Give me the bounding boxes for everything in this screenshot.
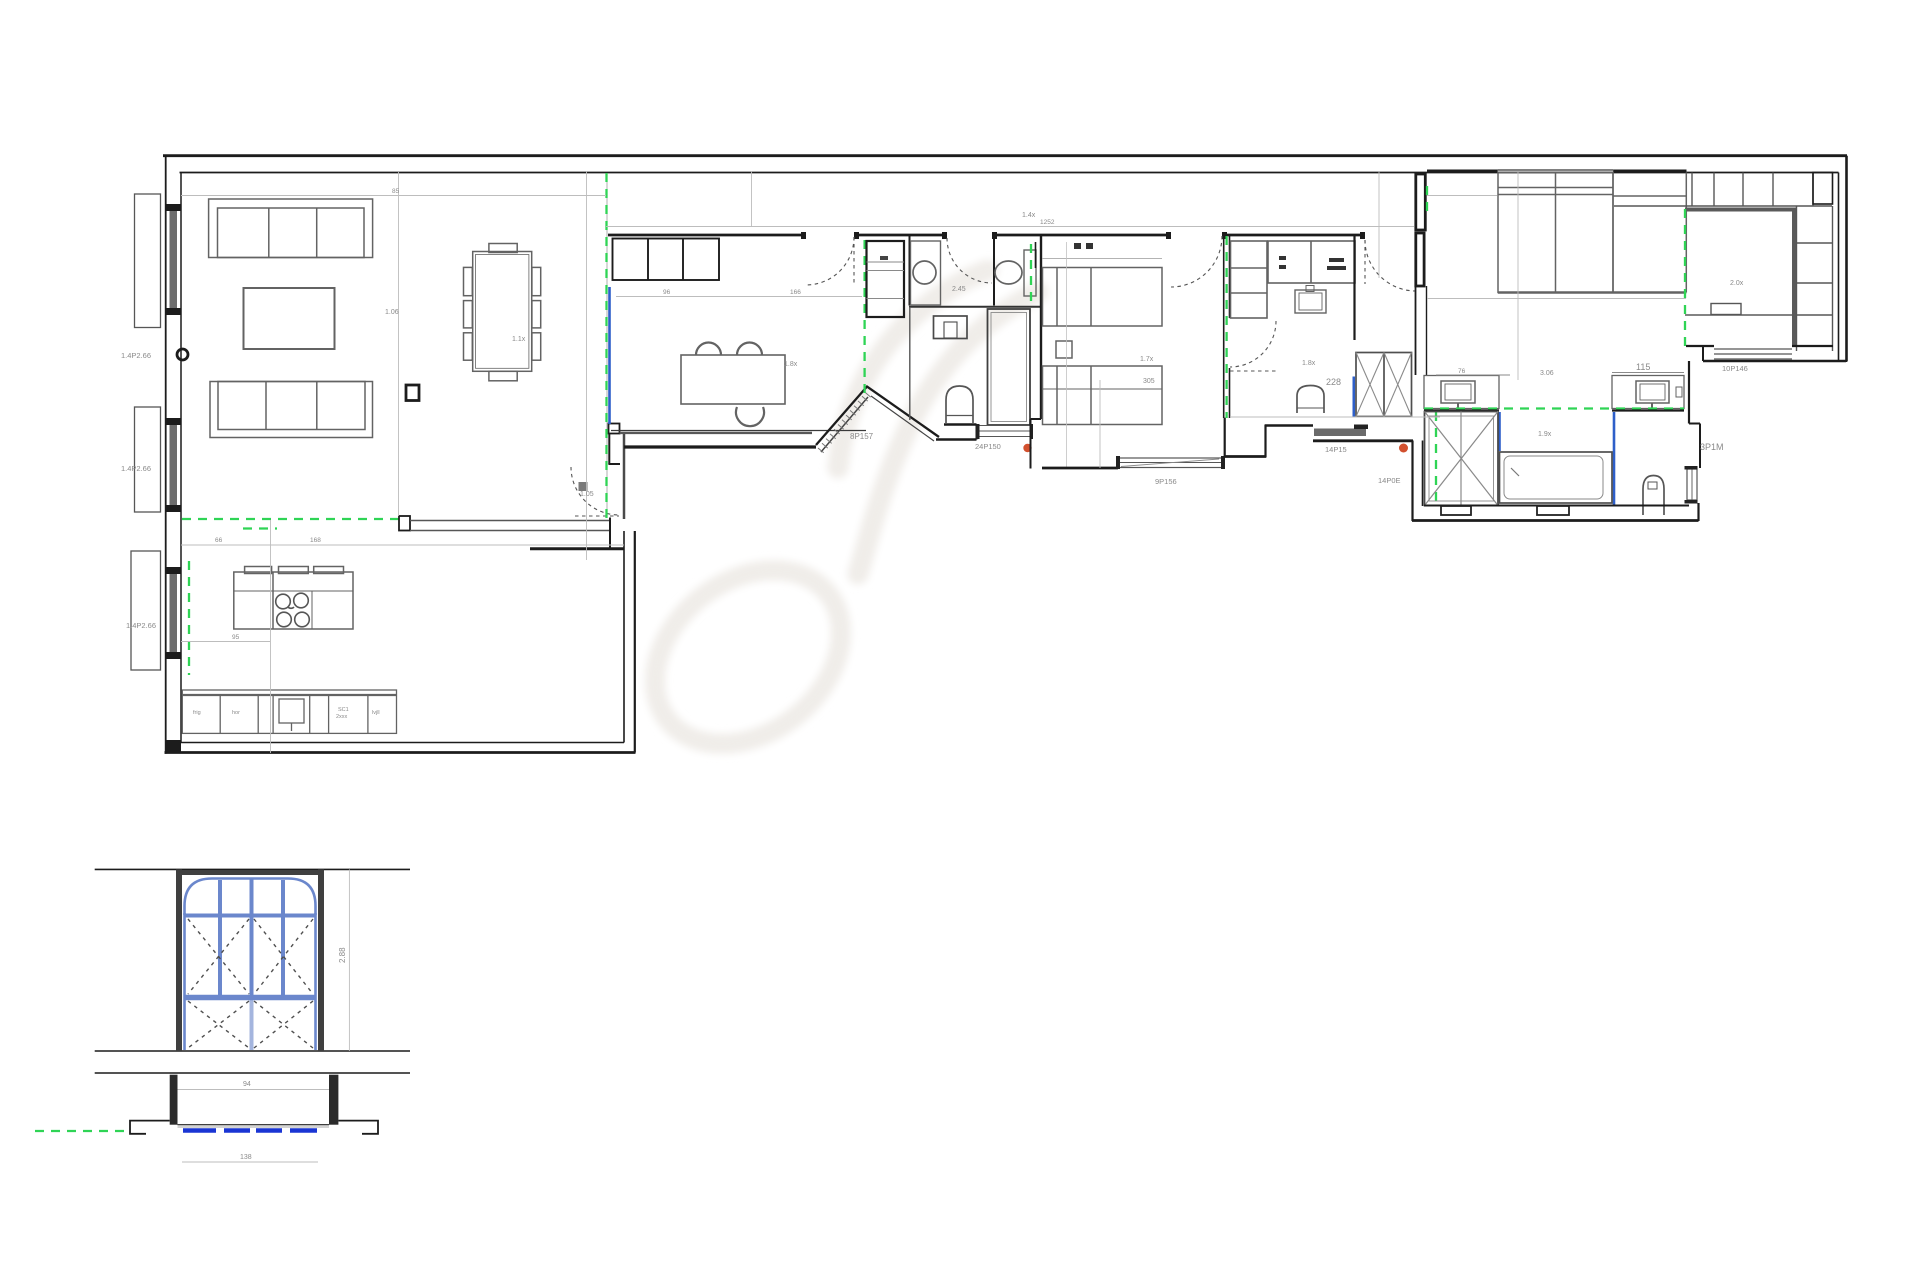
svg-text:8P157: 8P157: [850, 432, 874, 441]
svg-text:95: 95: [232, 634, 240, 641]
svg-text:24P150: 24P150: [975, 442, 1001, 451]
svg-text:166: 166: [790, 289, 801, 296]
svg-text:76: 76: [1458, 368, 1466, 375]
svg-text:2.45: 2.45: [952, 286, 966, 293]
svg-text:1.4P2.66: 1.4P2.66: [126, 621, 156, 630]
svg-text:9P156: 9P156: [1155, 477, 1177, 486]
svg-text:66: 66: [215, 537, 223, 544]
svg-text:3P1M: 3P1M: [1700, 442, 1724, 452]
svg-text:115: 115: [1636, 362, 1650, 372]
svg-text:305: 305: [1143, 378, 1155, 385]
svg-text:1252: 1252: [1040, 219, 1055, 226]
svg-text:2.0x: 2.0x: [1730, 280, 1744, 287]
svg-text:228: 228: [1326, 377, 1341, 387]
svg-text:14P15: 14P15: [1325, 445, 1347, 454]
svg-text:2xxx: 2xxx: [336, 714, 348, 720]
svg-text:frig: frig: [193, 710, 201, 716]
svg-text:1.4x: 1.4x: [1022, 212, 1036, 219]
svg-text:hor: hor: [232, 710, 240, 716]
svg-text:1.1x: 1.1x: [512, 336, 526, 343]
svg-text:138: 138: [240, 1154, 252, 1161]
svg-text:1.4P2.66: 1.4P2.66: [121, 351, 151, 360]
svg-text:1.8x: 1.8x: [784, 361, 798, 368]
svg-text:94: 94: [243, 1081, 251, 1088]
svg-text:14P0E: 14P0E: [1378, 476, 1401, 485]
svg-text:85: 85: [392, 188, 400, 195]
svg-text:168: 168: [310, 537, 321, 544]
svg-text:3.06: 3.06: [1540, 370, 1554, 377]
svg-text:1.05: 1.05: [580, 491, 594, 498]
svg-text:SC1: SC1: [338, 707, 349, 713]
svg-text:1.4P2.66: 1.4P2.66: [121, 464, 151, 473]
svg-text:96: 96: [663, 289, 671, 296]
svg-text:lvjll: lvjll: [372, 710, 380, 716]
svg-text:2.88: 2.88: [338, 947, 347, 963]
svg-text:1.8x: 1.8x: [1302, 360, 1316, 367]
svg-text:1.7x: 1.7x: [1140, 356, 1154, 363]
svg-text:1.9x: 1.9x: [1538, 431, 1552, 438]
svg-text:10P146: 10P146: [1722, 364, 1748, 373]
svg-text:1.06: 1.06: [385, 309, 399, 316]
